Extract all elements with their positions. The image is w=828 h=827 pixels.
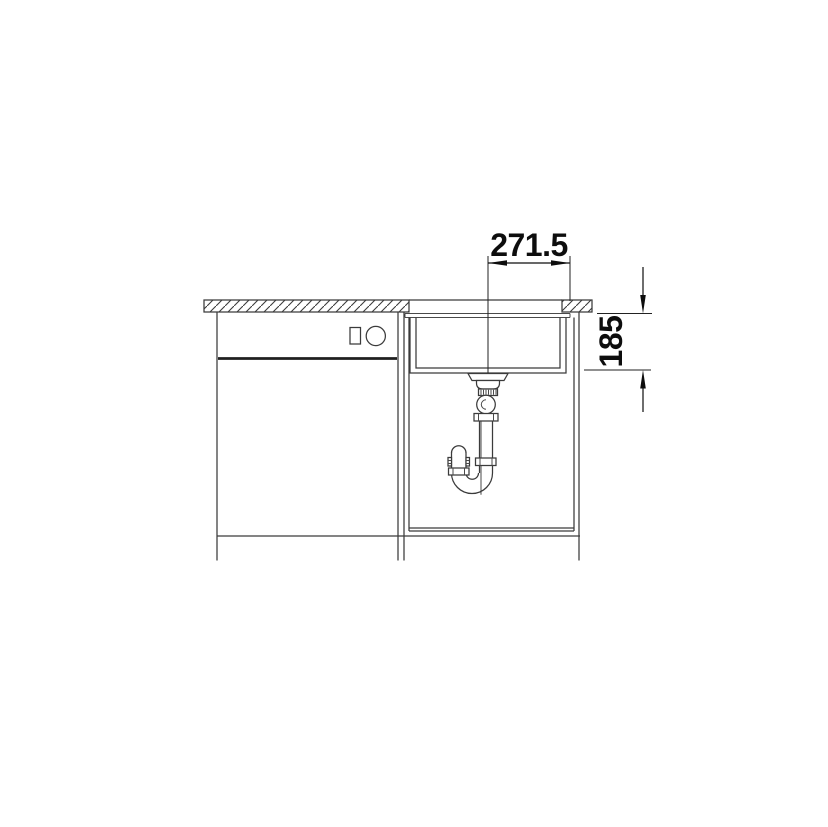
sink-cabinet-right-wall: [574, 312, 579, 561]
trap-outlet: [448, 446, 470, 475]
dimension-bowl-depth: 185: [584, 267, 652, 412]
sink-installation-diagram: 271.5 185: [0, 0, 828, 827]
drain-flange: [468, 374, 508, 381]
sink-cabinet: [404, 312, 579, 561]
technical-drawing-page: 271.5 185: [0, 0, 828, 827]
cabinet-controls: [350, 326, 385, 345]
p-trap-u-bend: [452, 473, 493, 493]
elbow-joint: [477, 395, 496, 414]
control-knob: [366, 326, 385, 345]
left-cabinet: [217, 312, 398, 561]
countertop: [204, 300, 592, 312]
union-nut-mid: [476, 458, 497, 466]
dimension-drain-to-edge-label: 271.5: [490, 227, 568, 263]
dimension-bowl-depth-label: 185: [593, 316, 629, 368]
left-cabinet-walls: [217, 312, 398, 561]
arrow-down-icon: [640, 295, 646, 314]
strainer-cup: [477, 381, 500, 390]
dimension-drain-to-edge: 271.5: [488, 227, 570, 301]
arrow-up-icon: [640, 370, 646, 389]
countertop-left-slab: [204, 300, 409, 312]
control-rect: [350, 328, 361, 345]
countertop-right-slab: [562, 300, 592, 312]
sink-cabinet-left-wall: [404, 312, 409, 561]
sink-cabinet-floor: [409, 528, 574, 531]
drain-assembly: [448, 374, 508, 495]
union-nut-upper: [474, 414, 498, 422]
